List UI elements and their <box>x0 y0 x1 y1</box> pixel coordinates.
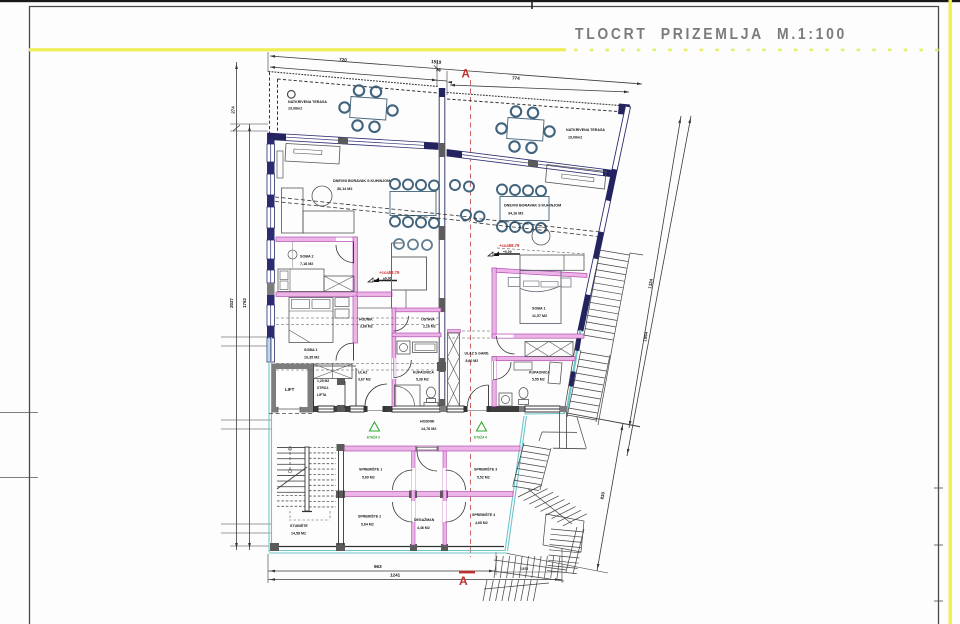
svg-text:A: A <box>462 69 470 81</box>
svg-text:HODNIK: HODNIK <box>420 420 435 424</box>
svg-text:2027: 2027 <box>229 298 234 308</box>
svg-text:5,69 M2: 5,69 M2 <box>362 476 375 480</box>
svg-text:DNEVNI BORAVAK S KUHINJOM: DNEVNI BORAVAK S KUHINJOM <box>504 204 561 208</box>
svg-text:11,57 M2: 11,57 M2 <box>532 314 547 318</box>
svg-text:DEGAŽMAN: DEGAŽMAN <box>414 517 435 522</box>
svg-text:19,08m2: 19,08m2 <box>288 107 302 111</box>
svg-text:2,16 M2: 2,16 M2 <box>423 325 436 329</box>
svg-text:34,16 M2: 34,16 M2 <box>508 212 523 216</box>
svg-text:±0,00: ±0,00 <box>383 276 392 280</box>
svg-text:274: 274 <box>231 106 236 114</box>
svg-text:+cca88.79: +cca88.79 <box>379 270 400 275</box>
svg-text:10,35 M2: 10,35 M2 <box>304 356 319 360</box>
svg-text:4,65 M2: 4,65 M2 <box>475 521 488 525</box>
svg-text:19,08m2: 19,08m2 <box>568 136 582 140</box>
svg-text:ETAŽA 3: ETAŽA 3 <box>367 435 380 440</box>
svg-text:4,46 M2: 4,46 M2 <box>417 526 430 530</box>
svg-text:1241: 1241 <box>390 573 401 578</box>
svg-text:1763: 1763 <box>242 298 247 308</box>
svg-text:36,14 M2: 36,14 M2 <box>337 187 352 191</box>
svg-text:ULAZ: ULAZ <box>358 371 368 375</box>
svg-text:NATKRIVENA TERASA: NATKRIVENA TERASA <box>288 100 327 104</box>
svg-text:ETAŽA 4: ETAŽA 4 <box>474 435 487 440</box>
svg-text:SPREMIŠTE 3: SPREMIŠTE 3 <box>474 467 497 472</box>
svg-text:14,78 M2: 14,78 M2 <box>421 427 436 431</box>
svg-text:DNEVNI BORAVAK S KUHINJOM: DNEVNI BORAVAK S KUHINJOM <box>333 179 390 183</box>
svg-text:7,18 M2: 7,18 M2 <box>300 262 313 266</box>
svg-text:14,58 M2: 14,58 M2 <box>291 532 306 536</box>
svg-text:STROJ.: STROJ. <box>317 386 329 390</box>
svg-text:SOBA 1: SOBA 1 <box>304 348 318 352</box>
svg-text:5,55 M2: 5,55 M2 <box>532 378 545 382</box>
svg-text:+cca88.79: +cca88.79 <box>499 243 520 248</box>
svg-text:720: 720 <box>339 57 347 63</box>
svg-text:SPREMIŠTE 1: SPREMIŠTE 1 <box>359 467 382 472</box>
svg-text:5,84 M2: 5,84 M2 <box>361 523 374 527</box>
svg-text:SPREMIŠTE 4: SPREMIŠTE 4 <box>472 512 495 517</box>
svg-text:1,25 M2: 1,25 M2 <box>317 379 329 383</box>
svg-text:LIFTA: LIFTA <box>317 393 327 397</box>
svg-text:1519: 1519 <box>431 59 442 65</box>
svg-text:LIFT: LIFT <box>285 387 295 392</box>
svg-text:5,38 M2: 5,38 M2 <box>416 378 429 382</box>
svg-text:KUPAONICA: KUPAONICA <box>413 371 434 375</box>
svg-text:A: A <box>459 574 468 588</box>
svg-text:SPREMIŠTE 2: SPREMIŠTE 2 <box>358 514 381 519</box>
svg-text:TLOCRT PRIZEMLJA M.1:100: TLOCRT PRIZEMLJA M.1:100 <box>575 26 847 43</box>
svg-text:NATKRIVENA TERASA: NATKRIVENA TERASA <box>566 128 605 132</box>
svg-text:1978: 1978 <box>521 567 528 571</box>
svg-text:963: 963 <box>374 564 382 569</box>
svg-text:+0,00: +0,00 <box>503 250 512 254</box>
svg-text:774: 774 <box>512 76 520 81</box>
svg-text:STUBIŠTE: STUBIŠTE <box>290 523 308 528</box>
svg-text:KUPAONICA: KUPAONICA <box>529 371 550 375</box>
svg-text:ULAZ S GARD.: ULAZ S GARD. <box>465 352 490 356</box>
svg-text:SOBA 1: SOBA 1 <box>532 307 546 311</box>
svg-text:3,67 M2: 3,67 M2 <box>358 378 371 382</box>
svg-text:SOBA 2: SOBA 2 <box>300 255 314 259</box>
svg-text:3,86 M2: 3,86 M2 <box>360 325 373 329</box>
svg-text:8,60 M2: 8,60 M2 <box>466 359 479 363</box>
svg-text:5,52 M2: 5,52 M2 <box>477 476 490 480</box>
